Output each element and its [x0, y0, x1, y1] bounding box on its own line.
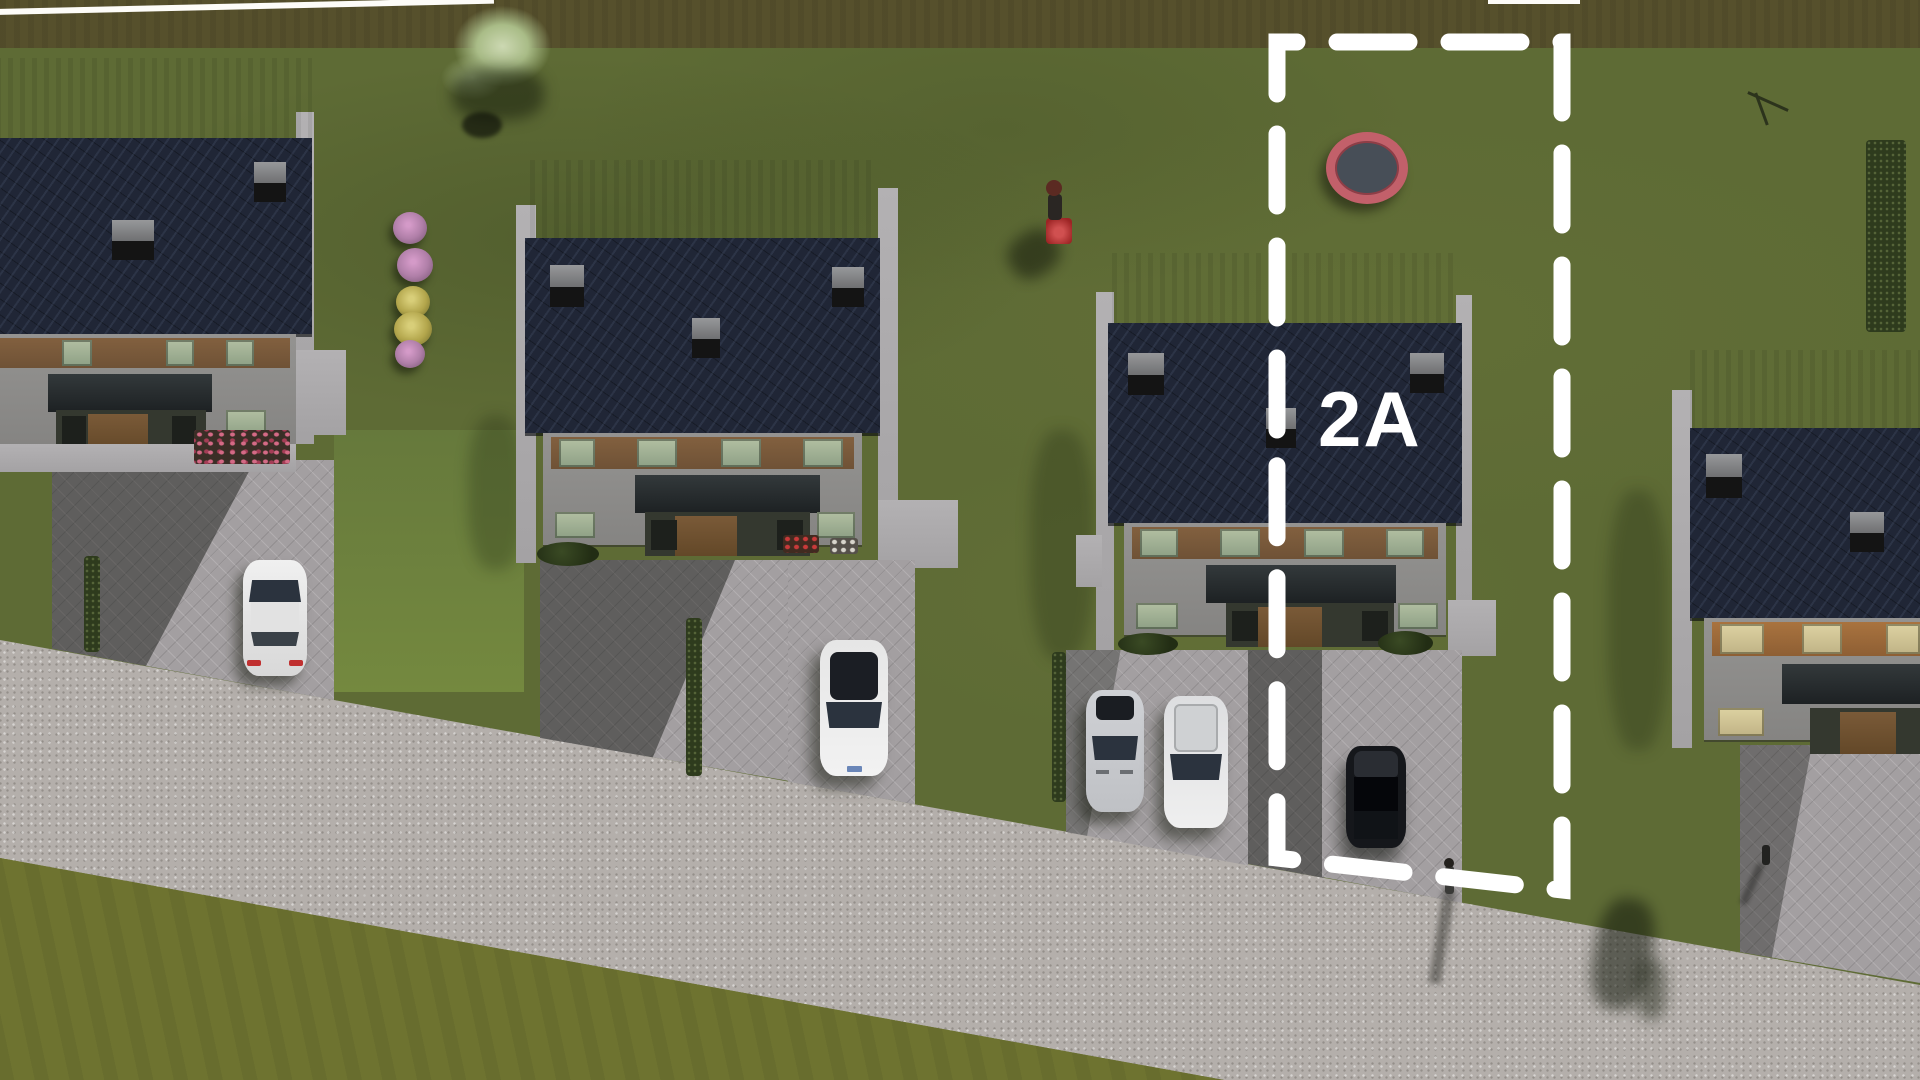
plot-2a-boundary[interactable]	[0, 0, 1920, 1080]
plot-2a-label[interactable]: 2A	[1318, 380, 1422, 458]
plot-2a-boundary-path	[1277, 42, 1562, 890]
aerial-site-render: 2A	[0, 0, 1920, 1080]
image-edge-sliver	[1488, 0, 1580, 4]
